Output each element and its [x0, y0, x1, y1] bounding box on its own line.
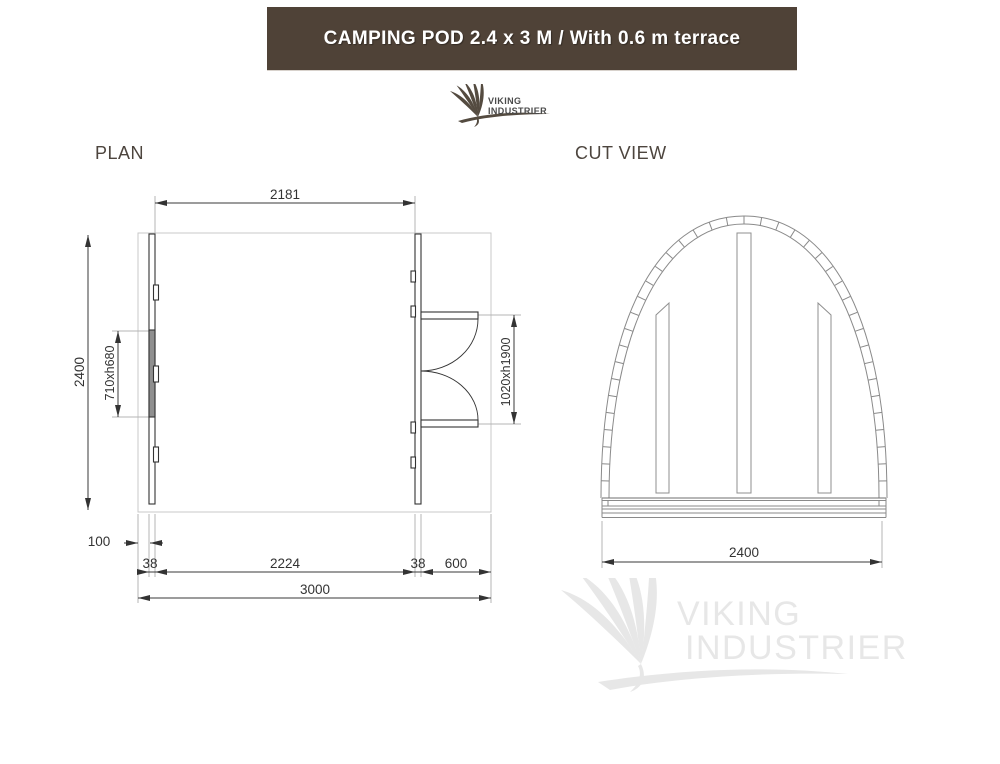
door-leaf-bottom	[421, 420, 478, 427]
support-posts	[656, 233, 831, 493]
dim-inner-length: 2224	[270, 556, 301, 571]
dim-wall-left: 38	[142, 556, 157, 571]
floor-structure	[602, 498, 886, 518]
dim-inner-width: 2181	[270, 187, 300, 202]
left-post	[656, 303, 669, 493]
dim-window-opening: 710xh680	[103, 345, 117, 400]
wall-stud	[411, 422, 416, 433]
plan-extension-lines	[112, 196, 521, 603]
dim-wall-right: 38	[410, 556, 425, 571]
door-swing-arc	[421, 371, 478, 420]
dim-terrace: 600	[445, 556, 468, 571]
wall-stud	[154, 285, 159, 300]
double-door	[421, 312, 478, 427]
wall-stud	[411, 306, 416, 317]
technical-drawing: 2181 2400 710xh680 1020xh1900 100 38 222…	[0, 0, 1000, 764]
wall-stud	[411, 271, 416, 282]
wall-stud	[154, 447, 159, 462]
wall-stud	[154, 366, 159, 382]
wall-stud	[411, 457, 416, 468]
dim-door-opening: 1020xh1900	[499, 338, 513, 407]
plan-drawing: 2181 2400 710xh680 1020xh1900 100 38 222…	[72, 187, 521, 603]
plan-left-wall	[149, 234, 159, 504]
dim-side-offset: 100	[88, 534, 111, 549]
center-post	[737, 233, 751, 493]
door-leaf-top	[421, 312, 478, 319]
plan-right-wall	[411, 234, 421, 504]
dim-depth: 2400	[72, 357, 87, 387]
plan-outline	[138, 233, 491, 512]
right-post	[818, 303, 831, 493]
drawing-sheet: VIKING INDUSTRIER CAMPING POD 2.4 x 3 M …	[0, 0, 1000, 764]
cut-view-drawing: 2400	[601, 216, 887, 568]
door-swing-arc	[421, 319, 478, 371]
dim-total-length: 3000	[300, 582, 330, 597]
dim-cut-width: 2400	[729, 545, 759, 560]
